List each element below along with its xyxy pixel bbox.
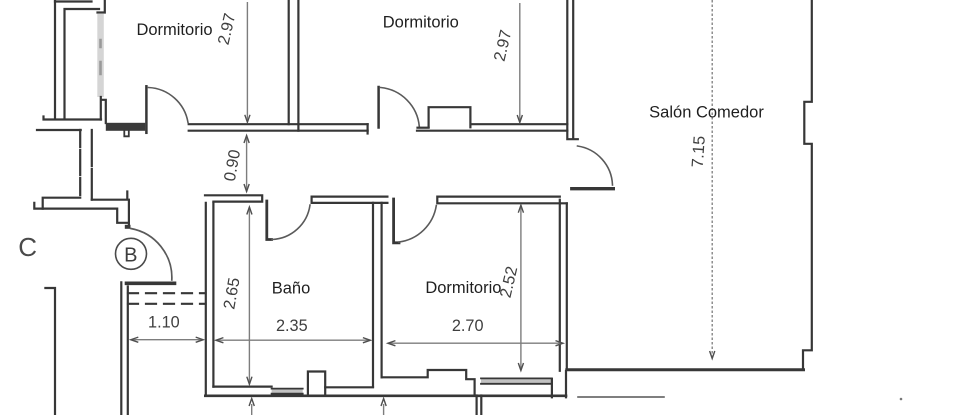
svg-text:Dormitorio: Dormitorio	[425, 279, 501, 297]
svg-text:2.65: 2.65	[220, 276, 243, 310]
svg-text:2.35: 2.35	[276, 317, 308, 335]
svg-text:2.97: 2.97	[491, 28, 516, 63]
svg-text:2.97: 2.97	[215, 12, 240, 47]
svg-text:1.10: 1.10	[148, 314, 180, 332]
svg-text:B: B	[124, 245, 137, 267]
svg-text:7.15: 7.15	[689, 135, 709, 168]
svg-text:Dormitorio: Dormitorio	[383, 14, 459, 32]
svg-text:Baño: Baño	[272, 280, 311, 298]
svg-text:C: C	[18, 232, 37, 262]
svg-text:Dormitorio: Dormitorio	[136, 21, 212, 39]
svg-text:2.70: 2.70	[452, 317, 484, 335]
svg-text:2.52: 2.52	[497, 265, 522, 300]
svg-text:Salón Comedor: Salón Comedor	[649, 104, 764, 122]
svg-text:0.90: 0.90	[221, 148, 244, 182]
